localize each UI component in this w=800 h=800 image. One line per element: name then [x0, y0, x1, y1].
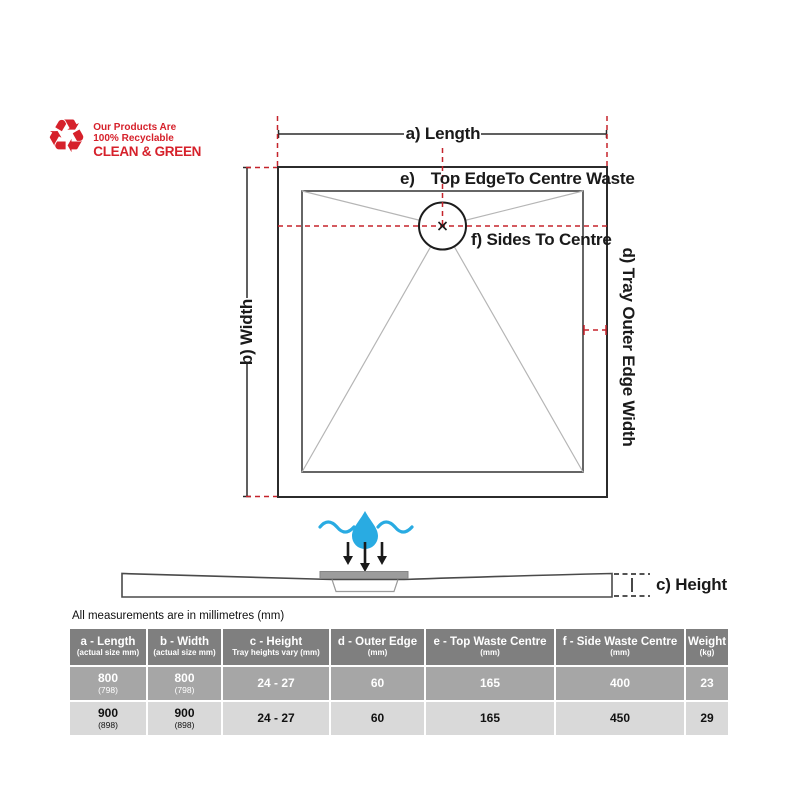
table-row: 60	[331, 667, 424, 700]
length-label: a) Length	[383, 124, 503, 144]
col-header-height: c - Height Tray heights vary (mm)	[223, 629, 329, 665]
recycle-line1: Our Products Are	[93, 122, 201, 133]
tray-side-profile	[122, 572, 612, 598]
measurements-note: All measurements are in millimetres (mm)	[72, 610, 284, 622]
table-row: 900 (898)	[148, 702, 221, 735]
table-row: 24 - 27	[223, 667, 329, 700]
top-waste-label: Top EdgeTo Centre Waste	[431, 169, 635, 188]
recycle-text: Our Products Are 100% Recyclable CLEAN &…	[93, 122, 201, 159]
recycle-badge: ♻ Our Products Are 100% Recyclable CLEAN…	[46, 112, 201, 160]
table-row: 23	[686, 667, 728, 700]
table-row: 800 (798)	[148, 667, 221, 700]
height-label: c) Height	[656, 575, 727, 595]
flow-arrows	[343, 542, 387, 572]
recycle-icon: ♻	[46, 112, 87, 160]
width-label: b) Width	[237, 252, 257, 412]
tray-outer-edge-width-label: d) Tray Outer Edge Width	[618, 237, 638, 457]
top-waste-label-row: e) Top EdgeTo Centre Waste	[400, 169, 604, 189]
col-header-width: b - Width (actual size mm)	[148, 629, 221, 665]
shower-tray-spec-sheet: ♻ Our Products Are 100% Recyclable CLEAN…	[0, 0, 800, 800]
table-row: 29	[686, 702, 728, 735]
col-header-weight: Weight (kg)	[686, 629, 728, 665]
table-row: 24 - 27	[223, 702, 329, 735]
table-row: 60	[331, 702, 424, 735]
table-row: 900 (898)	[70, 702, 146, 735]
recycle-line2: 100% Recyclable	[93, 133, 201, 144]
table-row: 450	[556, 702, 684, 735]
waste-cover-bar	[320, 572, 408, 579]
col-header-side-waste-centre: f - Side Waste Centre (mm)	[556, 629, 684, 665]
table-row: 165	[426, 702, 554, 735]
col-header-outer-edge: d - Outer Edge (mm)	[331, 629, 424, 665]
sides-to-centre-label: f) Sides To Centre	[471, 230, 612, 250]
recycle-line3: CLEAN & GREEN	[93, 145, 201, 159]
col-header-length: a - Length (actual size mm)	[70, 629, 146, 665]
table-row: 400	[556, 667, 684, 700]
table-row: 800 (798)	[70, 667, 146, 700]
top-waste-prefix: e)	[400, 169, 415, 188]
table-row: 165	[426, 667, 554, 700]
spec-table: a - Length (actual size mm) b - Width (a…	[70, 629, 728, 735]
col-header-top-waste-centre: e - Top Waste Centre (mm)	[426, 629, 554, 665]
height-dimension-bracket	[614, 574, 650, 596]
